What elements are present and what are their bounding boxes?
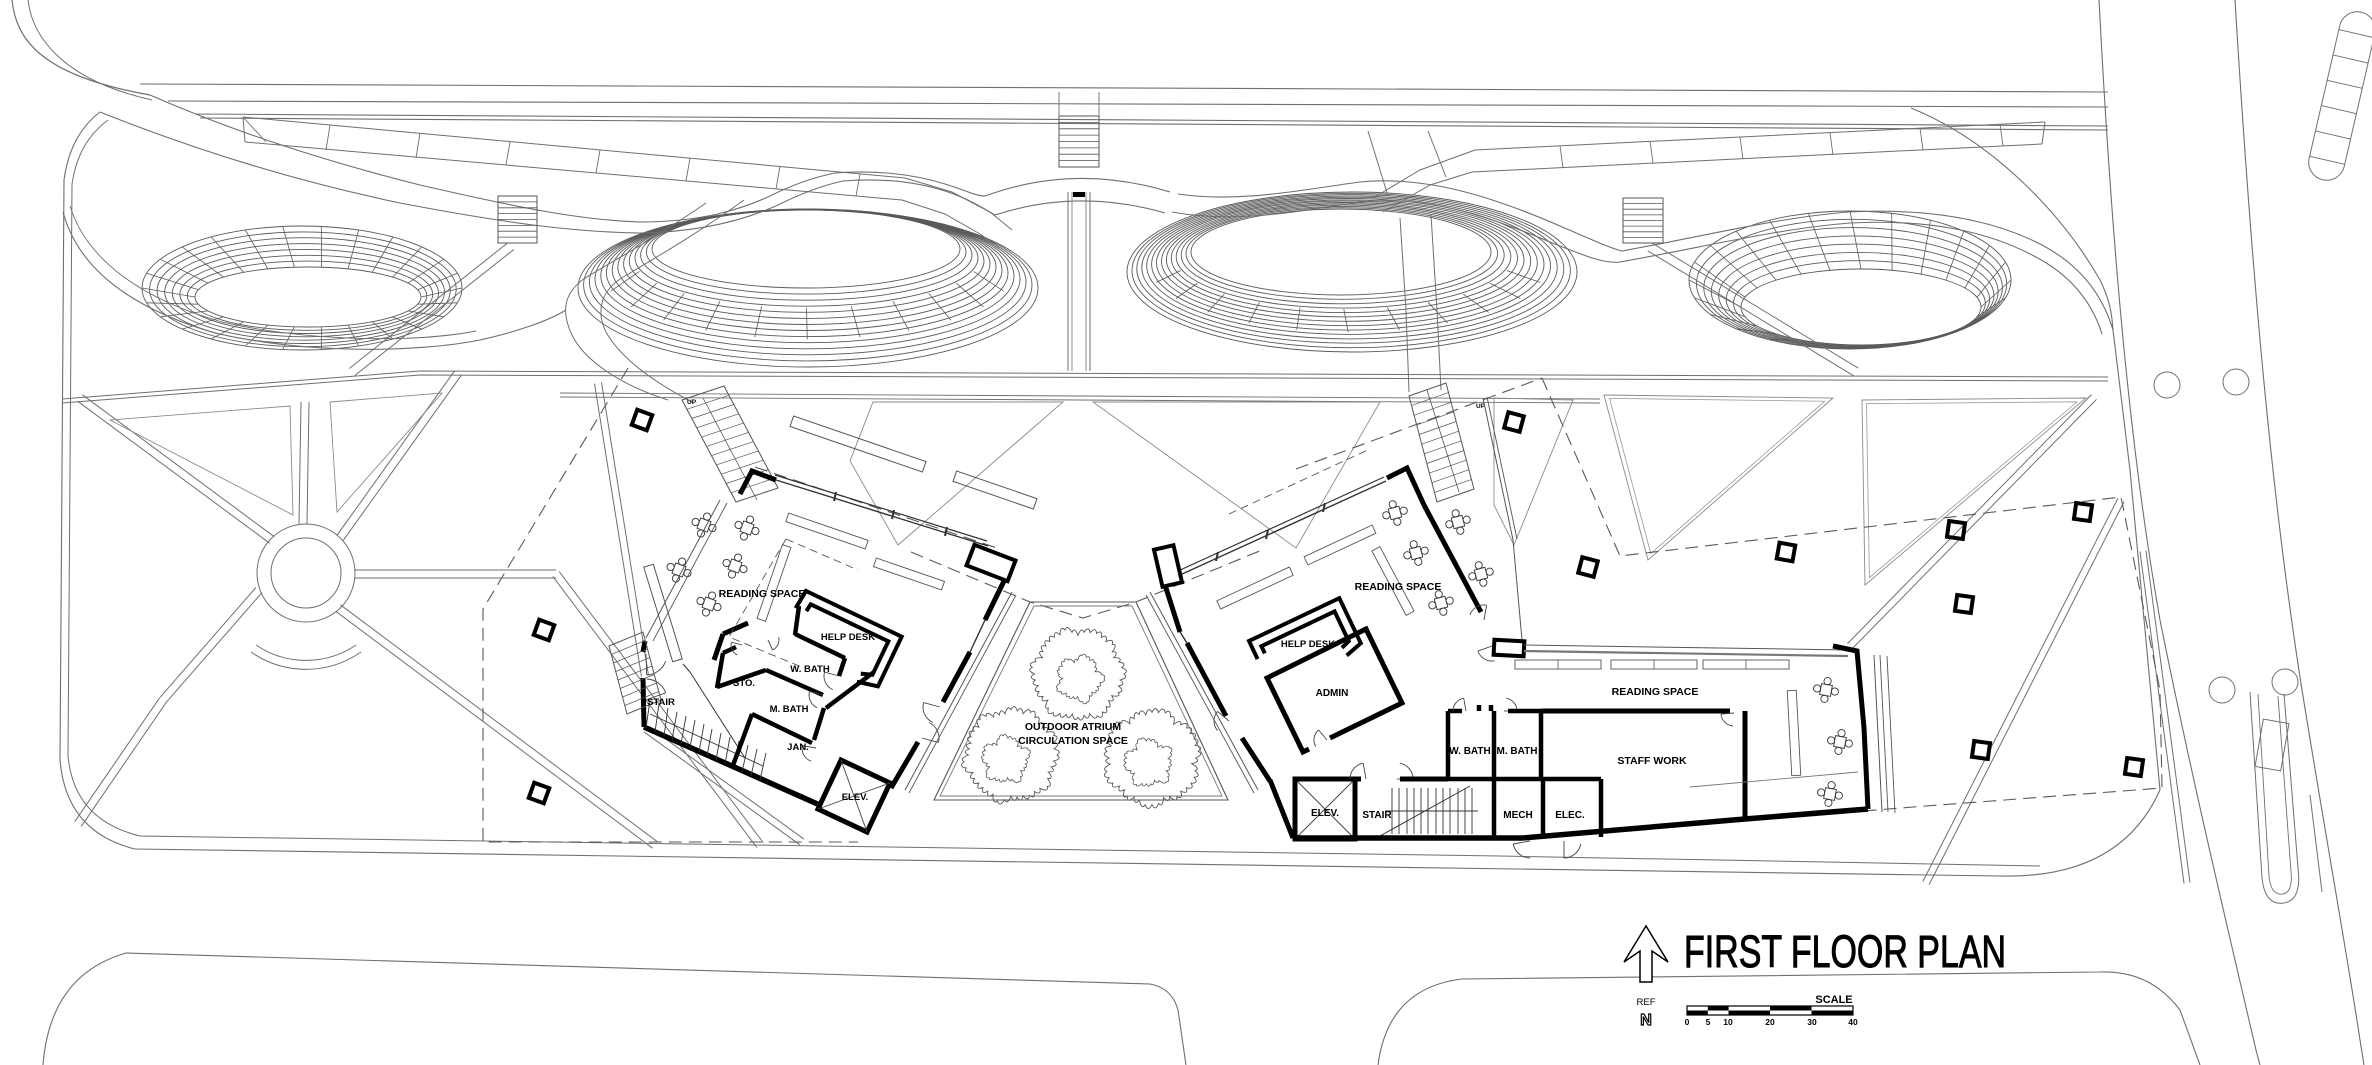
svg-text:READING SPACE: READING SPACE bbox=[1355, 581, 1442, 593]
svg-text:FIRST FLOOR PLAN: FIRST FLOOR PLAN bbox=[1684, 926, 2006, 977]
svg-text:STAFF WORK: STAFF WORK bbox=[1617, 755, 1687, 767]
svg-text:20: 20 bbox=[1765, 1017, 1775, 1027]
svg-text:JAN.: JAN. bbox=[787, 742, 809, 753]
svg-text:M. BATH: M. BATH bbox=[1497, 746, 1538, 757]
svg-text:ELEV.: ELEV. bbox=[1311, 808, 1339, 819]
svg-text:30: 30 bbox=[1807, 1017, 1817, 1027]
svg-text:5: 5 bbox=[1706, 1017, 1711, 1027]
svg-text:STO.: STO. bbox=[733, 678, 755, 689]
svg-text:HELP DESK: HELP DESK bbox=[821, 632, 875, 643]
svg-text:UP: UP bbox=[687, 399, 697, 406]
svg-text:M. BATH: M. BATH bbox=[770, 704, 809, 715]
svg-text:N: N bbox=[1640, 1012, 1652, 1029]
svg-text:SCALE: SCALE bbox=[1815, 994, 1852, 1006]
svg-text:READING SPACE: READING SPACE bbox=[719, 588, 806, 600]
svg-text:40: 40 bbox=[1848, 1017, 1858, 1027]
svg-text:READING SPACE: READING SPACE bbox=[1612, 686, 1699, 698]
svg-text:0: 0 bbox=[1685, 1017, 1690, 1027]
svg-text:CIRCULATION SPACE: CIRCULATION SPACE bbox=[1018, 735, 1128, 747]
svg-text:OUTDOOR ATRIUM: OUTDOOR ATRIUM bbox=[1025, 721, 1121, 733]
svg-text:ELEV.: ELEV. bbox=[842, 792, 869, 803]
svg-text:STAIR: STAIR bbox=[1362, 810, 1392, 821]
svg-text:10: 10 bbox=[1723, 1017, 1733, 1027]
svg-text:ADMIN: ADMIN bbox=[1316, 688, 1349, 699]
svg-text:STAIR: STAIR bbox=[647, 697, 675, 708]
svg-text:ELEC.: ELEC. bbox=[1555, 810, 1585, 821]
svg-text:REF: REF bbox=[1637, 997, 1656, 1008]
svg-text:W. BATH: W. BATH bbox=[790, 664, 830, 675]
svg-text:W. BATH: W. BATH bbox=[1449, 746, 1490, 757]
svg-text:MECH: MECH bbox=[1503, 810, 1532, 821]
